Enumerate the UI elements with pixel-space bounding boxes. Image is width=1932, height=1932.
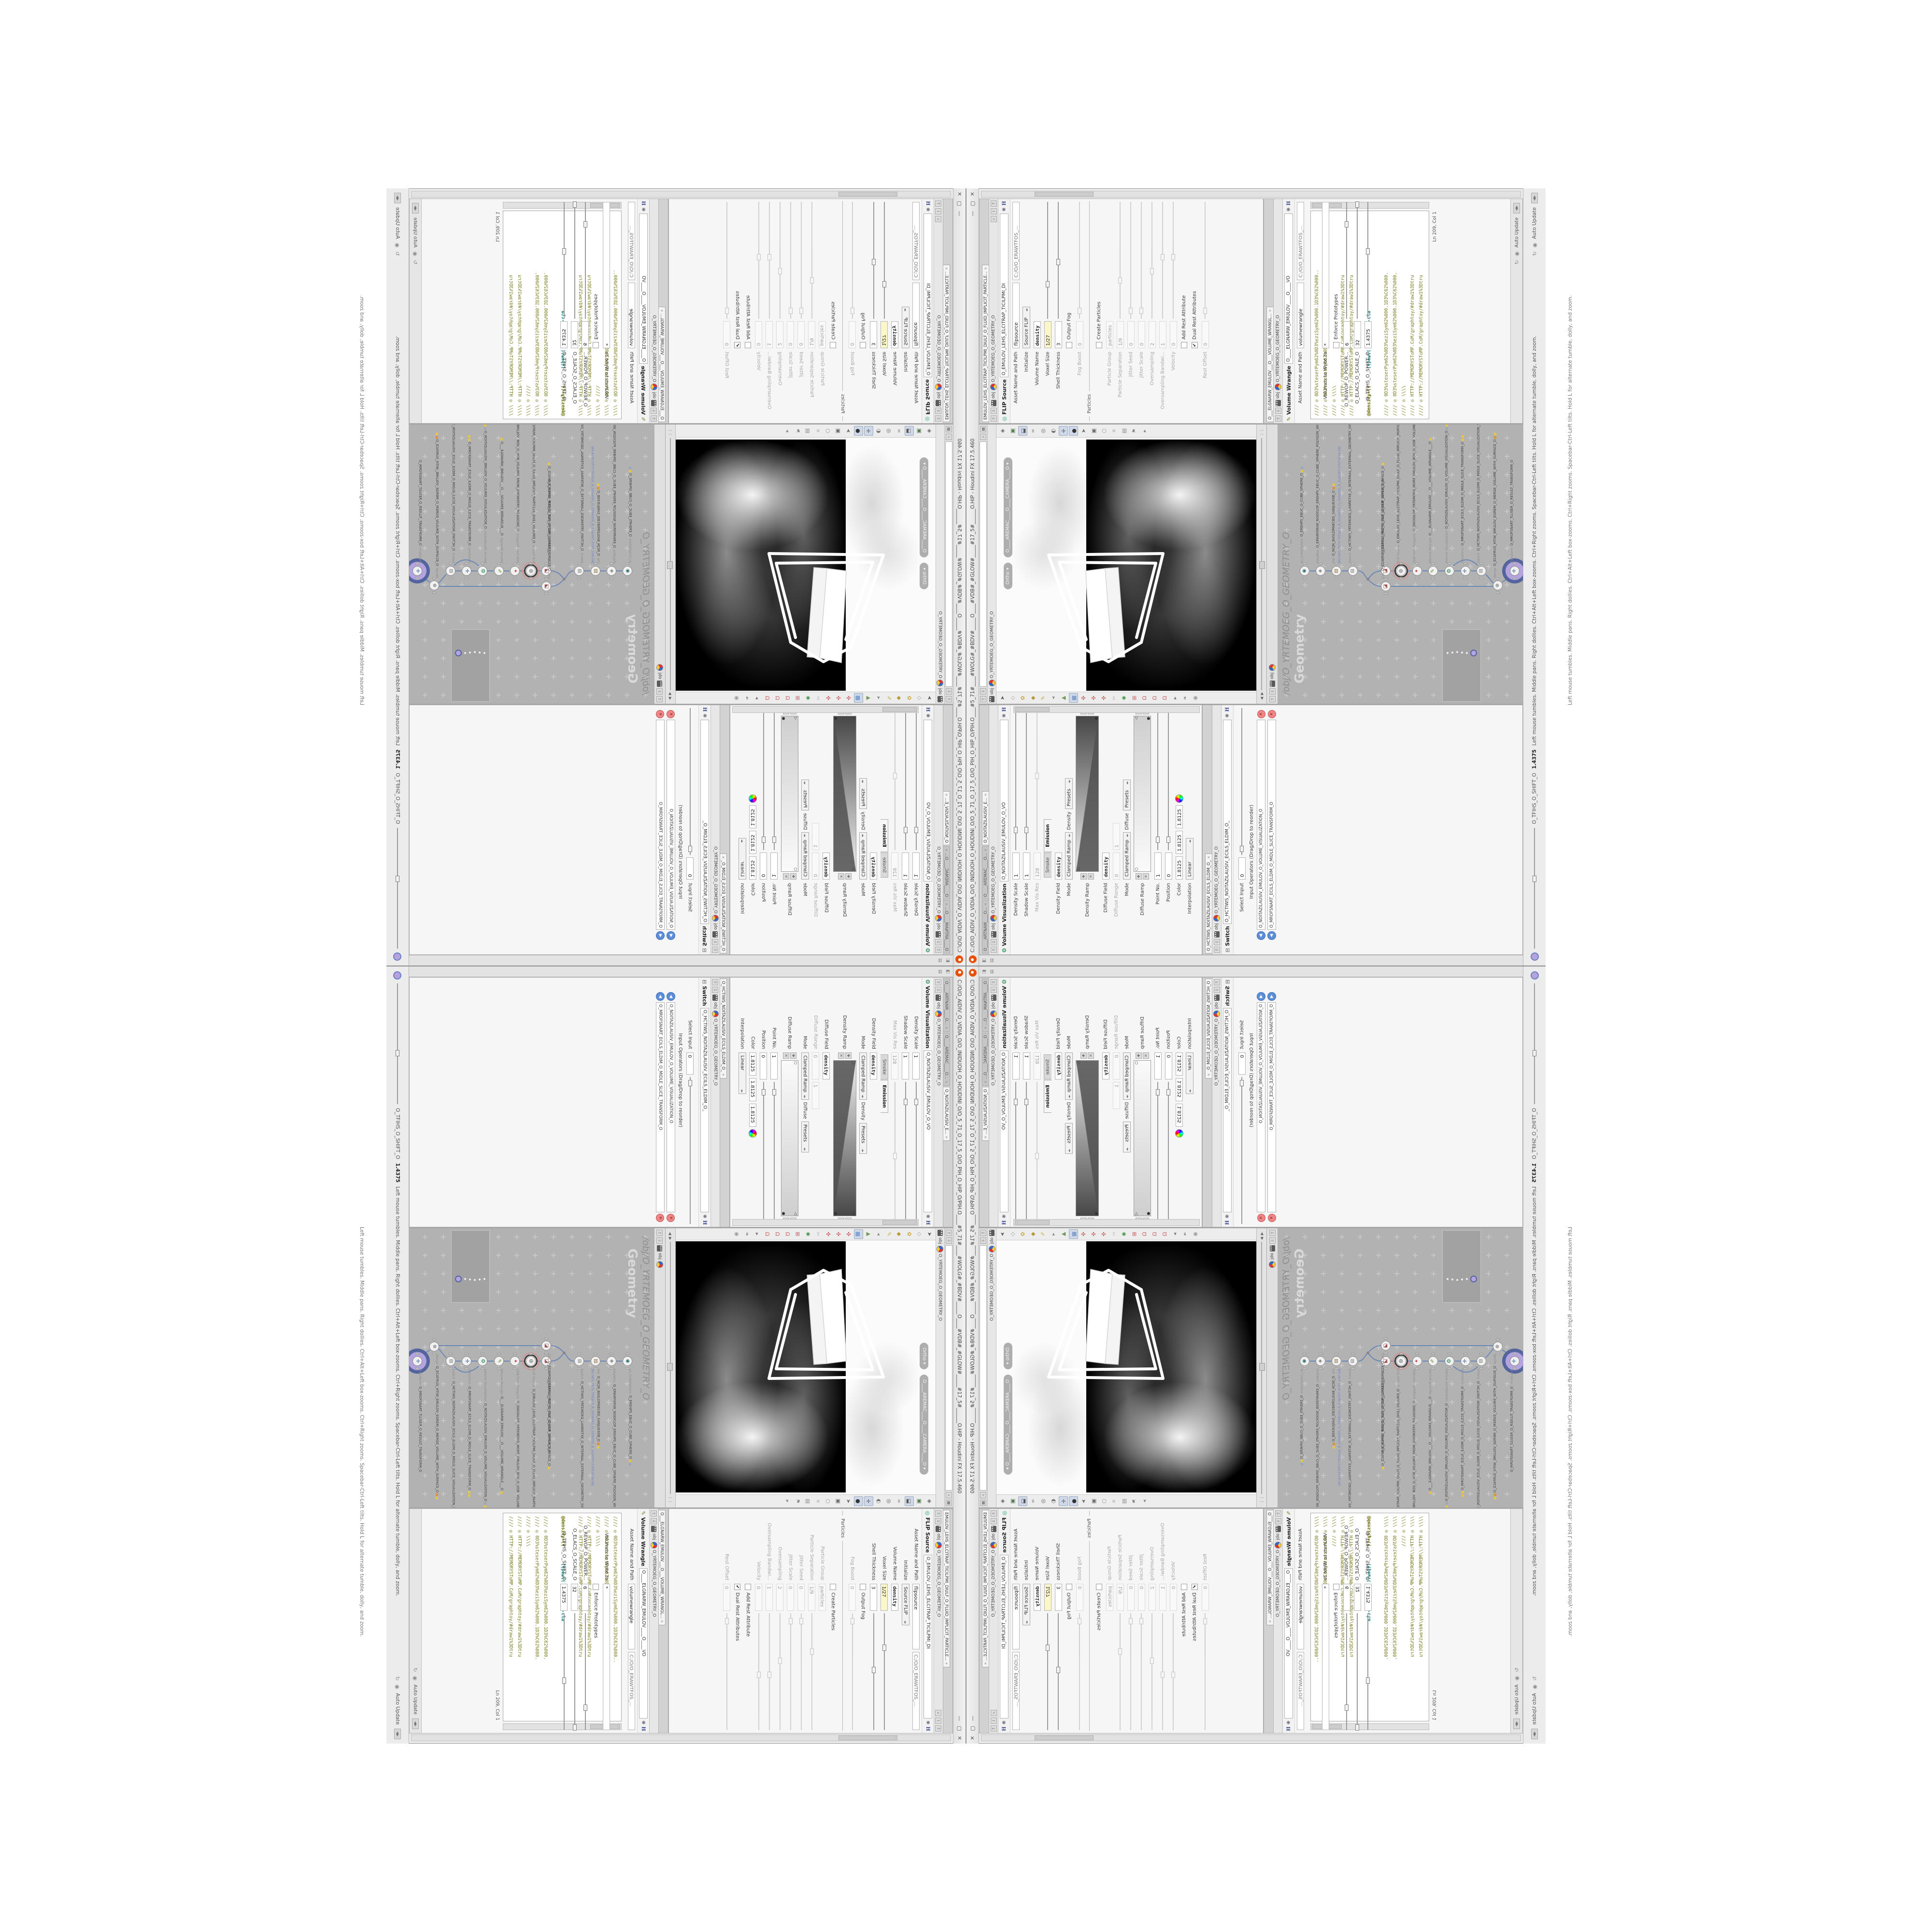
recook-icon[interactable]: ↻: [412, 1668, 419, 1672]
volumes-value[interactable]: *: [1322, 202, 1329, 348]
gear-icon[interactable]: ❋: [1002, 713, 1007, 717]
render-area[interactable]: Ortho ▾ O____AREMAC____O____CAMERA____O …: [676, 1240, 936, 1493]
param-slider[interactable]: [1202, 202, 1208, 319]
dropdown[interactable]: Linear: [1186, 1052, 1193, 1094]
left-pane-tab-2[interactable]: O_NOITAZILAUSIV_E...✕: [943, 791, 950, 845]
volviz-name-field[interactable]: O_NOITAZILAUSIV_EMULOV_O_VO: [923, 1051, 932, 1212]
left-pane-tab-2[interactable]: O_NOITAZILAUSIV_E...✕: [943, 1087, 950, 1141]
select-tool-icon[interactable]: ➤: [925, 693, 934, 703]
presets-dropdown[interactable]: Presets: [859, 778, 867, 809]
auto-update-select[interactable]: Auto Update: [395, 207, 400, 239]
network-node[interactable]: ✎: [493, 1355, 505, 1367]
camera-lock-icon[interactable]: ⬓: [1018, 1496, 1027, 1506]
select-input-value[interactable]: 0: [687, 1052, 694, 1075]
network-node[interactable]: ❂: [1443, 1355, 1456, 1367]
operator-delete-icon[interactable]: ✕: [656, 710, 665, 718]
param-slider[interactable]: [771, 1082, 778, 1224]
param-value[interactable]: 0: [798, 1584, 805, 1611]
param-value[interactable]: density: [1055, 852, 1062, 880]
network-node[interactable]: ▤: [589, 565, 602, 577]
param-value[interactable]: density: [823, 1052, 830, 1080]
wrangle-name-field[interactable]: O____ELGNARW_EMULOV____O____VO: [639, 213, 648, 364]
slider-knob[interactable]: [762, 837, 766, 843]
auto-update-select[interactable]: Auto Update: [1532, 207, 1537, 239]
operator-delete-icon[interactable]: ✕: [1257, 1214, 1265, 1222]
param-slider[interactable]: [1023, 1082, 1030, 1224]
more-icon[interactable]: ▸: [1140, 426, 1149, 436]
ramp-marker-start[interactable]: ○: [852, 1061, 856, 1065]
node-path[interactable]: O_YRTEMOEG_O_GEOMETRY_O: [938, 611, 943, 678]
param-value[interactable]: 1: [771, 852, 778, 880]
shade-half-icon[interactable]: ◐: [1049, 426, 1058, 436]
flip-pane-tab[interactable]: EMULOV_LEHS_ELCITRAP_TICILPMI_DIULF_O_FL…: [982, 1510, 989, 1667]
cut-tool-icon[interactable]: ✂: [1109, 1229, 1119, 1239]
subtab-emission[interactable]: Emission: [1044, 1080, 1051, 1113]
param-value[interactable]: 1/9: [1117, 321, 1124, 348]
asset-name-value[interactable]: volumewrangle: [1297, 1584, 1304, 1649]
asset-name-value[interactable]: flipsource: [1012, 283, 1020, 348]
dark-sphere-icon[interactable]: ●: [854, 1496, 863, 1506]
param-slider[interactable]: [1354, 1613, 1361, 1730]
viewport-search-input[interactable]: [980, 441, 987, 687]
ramp-marker-end[interactable]: ◁: [1134, 1212, 1138, 1215]
param-value[interactable]: 2: [777, 1584, 784, 1611]
range-min-value[interactable]: 0: [1113, 1052, 1120, 1080]
node-path[interactable]: O_YRTEMOEG_O_GEOMETRY_O: [1214, 1019, 1219, 1086]
slider-knob[interactable]: [799, 308, 803, 314]
slider-knob[interactable]: [810, 277, 814, 284]
rig-pose-icon[interactable]: ✣: [1079, 693, 1088, 703]
slider-knob[interactable]: [904, 1099, 908, 1105]
checkbox[interactable]: [1096, 1584, 1102, 1590]
node-circle[interactable]: ◪: [541, 1341, 551, 1350]
rig-rotate-icon[interactable]: ✣: [1089, 1229, 1098, 1239]
hscript-icon[interactable]: H: [925, 1727, 931, 1731]
param-value[interactable]: 128: [1034, 852, 1041, 880]
param-value[interactable]: 0: [1170, 321, 1177, 348]
tab-close-icon[interactable]: ✕: [984, 849, 988, 852]
context-label[interactable]: obj: [652, 392, 656, 398]
slider-knob[interactable]: [851, 1618, 854, 1624]
search-icon[interactable]: ⌕: [991, 1710, 997, 1716]
operator-reorder-icon[interactable]: ◀: [1257, 931, 1265, 940]
path-up-icon[interactable]: ⇧: [712, 947, 719, 953]
frame-fwd-icon[interactable]: ▶: [1260, 692, 1264, 695]
pane-split-icon[interactable]: ◧: [945, 958, 950, 963]
pane-menu-icon[interactable]: ▤: [938, 969, 942, 974]
hscript-icon[interactable]: H: [925, 1221, 931, 1225]
param-value[interactable]: 32: [1354, 1584, 1361, 1611]
search-icon[interactable]: ⌕: [980, 434, 986, 440]
viewport-playbar[interactable]: ◀ ▶ ⋮⋮: [665, 1228, 676, 1507]
network-node[interactable]: ✛: [460, 565, 473, 577]
cook-sphere-icon[interactable]: ◉: [395, 243, 401, 248]
switch-name-field[interactable]: O_HCTIWS_NOITAZILAUSIV_ECILS_ELDIM_O_: [1223, 1008, 1232, 1212]
path-down-icon[interactable]: ⇩: [980, 1237, 986, 1244]
context-label[interactable]: obj: [652, 1534, 656, 1540]
volviz-name-field[interactable]: O_NOITAZILAUSIV_EMULOV_O_VO: [1000, 720, 1009, 881]
select-input-value[interactable]: 0: [1238, 857, 1246, 880]
network-node[interactable]: ⊕: [1492, 579, 1504, 592]
frame-fwd-icon[interactable]: ▶: [668, 692, 673, 695]
node-circle[interactable]: ◉: [1300, 566, 1309, 576]
tab-close-icon[interactable]: ✕: [944, 903, 948, 906]
volviz-name-field[interactable]: O_NOITAZILAUSIV_EMULOV_O_VO: [1000, 1051, 1009, 1212]
context-label[interactable]: obj: [657, 672, 662, 679]
network-navmap[interactable]: [1442, 629, 1481, 702]
gear-icon[interactable]: ❋: [702, 1214, 708, 1218]
recook-icon[interactable]: ↻: [412, 260, 419, 264]
tab-close-icon[interactable]: ✕: [944, 794, 948, 796]
param-value[interactable]: 6: [1343, 1584, 1350, 1611]
presets-dropdown[interactable]: Presets: [801, 780, 809, 810]
param-slider[interactable]: [582, 1613, 589, 1730]
select-tool-icon[interactable]: ➤: [998, 1229, 1007, 1239]
grid-icon[interactable]: ▦: [980, 426, 986, 432]
param-slider[interactable]: [766, 1613, 773, 1730]
network-node[interactable]: ◎: [525, 565, 537, 577]
expand-icon[interactable]: ▸: [753, 693, 762, 703]
pane-menu-icon[interactable]: ▤: [990, 969, 994, 974]
slider-knob[interactable]: [778, 1658, 782, 1664]
param-slider[interactable]: [1159, 1613, 1166, 1730]
path-down-icon[interactable]: ⇩: [991, 408, 997, 414]
splitter-handle[interactable]: ◀▶: [1513, 203, 1520, 213]
node-path[interactable]: O_YRTEMOEG_O_GEOMETRY_O: [991, 1550, 996, 1617]
grid-icon[interactable]: ▦: [980, 1500, 986, 1506]
camera-pill[interactable]: O____AREMAC____O____CAMERA____O ▾: [920, 1375, 928, 1475]
ramp-btn[interactable]: ✕: [838, 873, 844, 880]
range-min-value[interactable]: 0: [812, 852, 820, 880]
network-node[interactable]: ✎: [493, 565, 505, 577]
subtab-smoke[interactable]: Smoke: [1044, 1054, 1051, 1080]
enforce-checkbox[interactable]: [1333, 342, 1339, 348]
path-down-icon[interactable]: ⇩: [946, 1237, 952, 1244]
ramp-marker-end[interactable]: ◁: [1076, 717, 1080, 720]
pane-split-icon[interactable]: ◧: [945, 969, 950, 974]
param-slider[interactable]: [902, 1082, 909, 1224]
feather-icon[interactable]: ❧: [742, 693, 752, 703]
param-value[interactable]: 1/27: [1044, 321, 1051, 348]
path-up-icon[interactable]: ⇧: [1275, 415, 1281, 422]
path-down-icon[interactable]: ⇩: [1214, 987, 1220, 993]
param-slider[interactable]: [1149, 202, 1155, 319]
wrangle-pane-tab[interactable]: O___ELGNARW_EMULOV___O___VOLUME_WRANGL..…: [659, 307, 666, 422]
param-slider[interactable]: [582, 202, 589, 319]
context-label[interactable]: obj: [657, 1253, 662, 1260]
param-slider[interactable]: [1055, 202, 1062, 319]
param-value[interactable]: 2: [1149, 1584, 1156, 1611]
close-button[interactable]: ✕: [969, 192, 976, 196]
color-wheel-icon[interactable]: [1175, 1129, 1183, 1137]
node-circle[interactable]: ⊟: [1348, 1356, 1358, 1366]
network-node[interactable]: ✛: [1508, 565, 1521, 577]
network-node[interactable]: ▤: [589, 1355, 602, 1367]
param-value[interactable]: 1: [1012, 1052, 1020, 1080]
pinwheel-tool-icon[interactable]: ✱: [803, 693, 812, 703]
context-label[interactable]: obj: [990, 688, 994, 695]
path-down-icon[interactable]: ⇩: [1269, 1237, 1276, 1244]
more-icon[interactable]: ▸: [783, 426, 792, 436]
back-icon[interactable]: ◂: [1049, 1229, 1058, 1239]
param-value[interactable]: 2: [1149, 321, 1156, 348]
slider-knob[interactable]: [583, 221, 587, 227]
param-value[interactable]: 0: [787, 321, 795, 348]
switch-pane-tab[interactable]: O_HCTIWS_NOITAZILAUSIV_ECILS_ELDIM_O_✕: [1205, 853, 1212, 953]
path-down-icon[interactable]: ⇩: [1275, 1518, 1281, 1524]
context-label[interactable]: obj: [936, 923, 941, 930]
slider-knob[interactable]: [1035, 1153, 1039, 1159]
param-value[interactable]: particles: [1106, 1584, 1113, 1611]
param-value[interactable]: 1/9: [1117, 1584, 1124, 1611]
path-up-icon[interactable]: ⇧: [651, 415, 657, 422]
ramp-gradient[interactable]: ○◁●: [833, 716, 856, 872]
mode-dropdown[interactable]: Clamped Ramp: [1065, 1052, 1073, 1100]
node-circle[interactable]: ✎: [1428, 566, 1438, 576]
param-value[interactable]: 1: [1154, 1052, 1162, 1080]
path-up-icon[interactable]: ⇧: [936, 947, 942, 953]
param-slider[interactable]: [1076, 202, 1083, 319]
path-down-icon[interactable]: ⇩: [1269, 688, 1276, 695]
context-label[interactable]: obj: [991, 1534, 996, 1540]
info-icon[interactable]: i: [991, 208, 997, 214]
gear-icon[interactable]: ❋: [641, 1720, 646, 1724]
ring-icon[interactable]: ◎: [1038, 1496, 1048, 1506]
color-component-value[interactable]: 1.8125: [1176, 1104, 1183, 1127]
ring-icon[interactable]: ◎: [1038, 426, 1048, 436]
pearl-icon[interactable]: ◉: [732, 693, 741, 703]
asset-path-value[interactable]: C:/O/O_ERAWTFOS_...: [1297, 1652, 1304, 1730]
range-max-value[interactable]: 1: [1113, 1082, 1120, 1109]
slider-knob[interactable]: [1345, 221, 1349, 227]
presets-dropdown[interactable]: Presets: [1065, 1123, 1073, 1154]
rig-translate-icon[interactable]: ✣: [824, 1229, 833, 1239]
node-path[interactable]: O_YRTEMOEG_O_GEOMETRY_O: [991, 315, 996, 382]
path-up-icon[interactable]: ⇧: [651, 1510, 657, 1517]
ramp-gradient[interactable]: ○◁●: [781, 716, 798, 872]
pane-split-icon[interactable]: ◧: [982, 958, 987, 963]
network-node[interactable]: ✦: [1411, 565, 1423, 577]
pearl-icon[interactable]: ◉: [1191, 693, 1200, 703]
param-slider[interactable]: [1165, 708, 1172, 850]
subtab-emission[interactable]: Emission: [881, 819, 888, 852]
ramp-gradient[interactable]: ○◁●: [833, 1060, 856, 1216]
ramp-gradient[interactable]: ○◁●: [1134, 716, 1151, 872]
subtab-emission[interactable]: Emission: [881, 1080, 888, 1113]
hscript-icon[interactable]: H: [1002, 201, 1007, 205]
frame-slider[interactable]: [670, 1242, 671, 1494]
operator-delete-icon[interactable]: ✕: [667, 1214, 675, 1222]
view-diamond-icon[interactable]: ◈: [998, 426, 1007, 436]
gear-icon[interactable]: ❋: [1002, 207, 1007, 211]
param-slider[interactable]: [724, 1613, 730, 1730]
node-circle[interactable]: ◪: [1381, 1341, 1391, 1350]
volviz-scrollbar[interactable]: [1013, 706, 1200, 713]
node-circle[interactable]: ✦: [510, 1356, 520, 1366]
select-input-slider[interactable]: [687, 708, 694, 855]
snapshot-icon[interactable]: ▣: [834, 426, 843, 436]
color-component-value[interactable]: 1.8125: [750, 1052, 757, 1076]
viewport-playbar[interactable]: ◀ ▶ ⋮⋮: [665, 425, 676, 704]
color-wheel-icon[interactable]: [749, 1129, 757, 1137]
tab-close-icon[interactable]: ✕: [944, 1136, 948, 1138]
snap-grid-icon[interactable]: ⊞: [1130, 1229, 1139, 1239]
network-node[interactable]: ⊕: [428, 1340, 440, 1353]
param-value[interactable]: density: [892, 1584, 899, 1611]
network-node[interactable]: ⊟: [1475, 1355, 1488, 1367]
search-icon[interactable]: ⌕: [980, 1492, 986, 1498]
slider-knob[interactable]: [1014, 827, 1018, 833]
node-circle[interactable]: ⊕: [429, 1342, 439, 1351]
checkbox[interactable]: ✔: [735, 342, 741, 348]
rig-translate-icon[interactable]: ✣: [1099, 693, 1108, 703]
search-icon[interactable]: ⌕: [936, 216, 942, 222]
network-node[interactable]: ⊟: [444, 565, 457, 577]
param-slider[interactable]: [1165, 1082, 1172, 1224]
tab-close-icon[interactable]: ✕: [944, 267, 948, 270]
snap-point-icon[interactable]: Ω: [1150, 693, 1159, 703]
mode-dropdown[interactable]: Clamped Ramp: [1123, 1052, 1131, 1100]
ramp-gradient[interactable]: ○◁●: [1076, 1060, 1099, 1216]
fill-tool-icon[interactable]: ◆: [895, 1229, 904, 1239]
snap-point-icon[interactable]: Ω: [773, 1229, 782, 1239]
param-value[interactable]: 0: [1165, 1052, 1172, 1080]
node-path[interactable]: O_YRTEMOEG_O_GEOMETRY_O: [991, 846, 996, 913]
network-node[interactable]: ✎: [1427, 1355, 1439, 1367]
param-value[interactable]: 6: [582, 321, 589, 348]
tab-close-icon[interactable]: ✕: [721, 856, 725, 859]
slider-knob[interactable]: [893, 1153, 897, 1159]
context-label[interactable]: obj: [936, 1002, 941, 1009]
node-circle[interactable]: ✦: [1412, 566, 1422, 576]
dot-icon[interactable]: ○: [824, 426, 833, 436]
node-circle[interactable]: ⊕: [1493, 1342, 1503, 1351]
crosshair-icon[interactable]: ✛: [1059, 1496, 1068, 1506]
snap-point-icon[interactable]: Ω: [1150, 1229, 1159, 1239]
cook-sphere-icon[interactable]: ◉: [1532, 1685, 1538, 1690]
search-icon[interactable]: ⌕: [991, 216, 997, 222]
context-label[interactable]: obj: [991, 923, 996, 930]
recook-icon[interactable]: ↻: [1532, 251, 1538, 256]
network-node[interactable]: ✛: [1459, 1355, 1472, 1367]
param-value[interactable]: 0: [787, 1584, 795, 1611]
param-slider[interactable]: [760, 708, 767, 850]
grid-small-icon[interactable]: ⌗: [1109, 1496, 1119, 1506]
param-value[interactable]: 1: [913, 1052, 920, 1080]
node-circle[interactable]: ✛: [462, 1356, 471, 1366]
param-slider[interactable]: [1138, 202, 1145, 319]
param-value[interactable]: 0: [1127, 1584, 1135, 1611]
network-node[interactable]: ▤: [1330, 1355, 1343, 1367]
expand-icon[interactable]: ▸: [753, 1229, 762, 1239]
grid-icon[interactable]: ▦: [946, 426, 952, 432]
param-slider[interactable]: [1149, 1613, 1155, 1730]
tab-close-icon[interactable]: ✕: [944, 1080, 948, 1083]
viewport-search-input[interactable]: [945, 1245, 952, 1491]
param-value[interactable]: 6: [582, 1584, 589, 1611]
ramp-btn[interactable]: ✚: [1080, 1052, 1087, 1059]
network-node[interactable]: ◉: [621, 565, 634, 577]
checkbox[interactable]: ✔: [735, 1584, 741, 1590]
operator-delete-icon[interactable]: ✕: [1257, 710, 1265, 718]
subtab-smoke[interactable]: Smoke: [881, 1054, 888, 1080]
pinwheel-tool-icon[interactable]: ✱: [803, 1229, 812, 1239]
wrangle-name-field[interactable]: O____ELGNARW_EMULOV____O____VO: [1284, 213, 1293, 364]
node-circle[interactable]: ▤: [591, 1356, 600, 1366]
param-slider[interactable]: [787, 1613, 794, 1730]
link-view-icon[interactable]: ∞: [895, 426, 904, 436]
slider-knob[interactable]: [1366, 248, 1370, 255]
cut-tool-icon[interactable]: ✂: [1109, 693, 1119, 703]
param-slider[interactable]: [1154, 1082, 1161, 1224]
param-value[interactable]: density: [1055, 1052, 1062, 1080]
path-down-icon[interactable]: ⇩: [991, 1518, 997, 1524]
param-value[interactable]: 1.4375: [1364, 1584, 1372, 1611]
node-circle[interactable]: ⊟: [446, 566, 455, 576]
network-navmap[interactable]: [451, 629, 490, 702]
node-circle[interactable]: ◪: [541, 582, 551, 591]
slider-knob[interactable]: [1203, 1618, 1207, 1624]
param-value[interactable]: 1: [766, 321, 773, 348]
slider-knob[interactable]: [893, 773, 897, 779]
help-icon[interactable]: ?: [936, 200, 942, 207]
viewport-playbar[interactable]: ◀ ▶ ⋮⋮: [1256, 425, 1267, 704]
snap-magnet-icon[interactable]: Ω: [783, 693, 792, 703]
network-editor[interactable]: /obj/O_YRTEMOEG_O_GEOMETRY_O Geometry ◉a…: [1278, 1228, 1523, 1507]
mode-dropdown[interactable]: Clamped Ramp: [1123, 832, 1131, 880]
path-up-icon[interactable]: ⇧: [946, 1230, 952, 1236]
fill-tool-icon[interactable]: ◆: [895, 693, 904, 703]
slider-knob[interactable]: [1129, 1618, 1133, 1624]
view-mode-pill[interactable]: Ortho ▾: [1004, 1343, 1012, 1369]
ramp-btn[interactable]: ✚: [845, 873, 852, 880]
path-down-icon[interactable]: ⇩: [712, 939, 719, 945]
slider-knob[interactable]: [1024, 827, 1028, 833]
param-slider[interactable]: [902, 708, 909, 850]
ramp-btn[interactable]: ✚: [1136, 873, 1142, 880]
node-circle[interactable]: ❂: [1445, 566, 1454, 576]
snap-prim-icon[interactable]: Ω: [1160, 693, 1169, 703]
tab-close-icon[interactable]: ✕: [984, 1136, 988, 1138]
snap-magnet-icon[interactable]: Ω: [783, 1229, 792, 1239]
node-path[interactable]: O_YRTEMOEG_O_GEOMETRY_O: [990, 1254, 994, 1321]
slider-knob[interactable]: [904, 827, 908, 833]
view-mode-icon[interactable]: ▦: [854, 693, 863, 703]
slider-knob[interactable]: [1355, 1724, 1359, 1731]
path-down-icon[interactable]: ⇩: [1275, 408, 1281, 414]
param-value[interactable]: particles: [819, 321, 826, 348]
dropdown[interactable]: Source FLIP: [902, 307, 909, 348]
pearl-icon[interactable]: ◉: [732, 1229, 741, 1239]
context-label[interactable]: obj: [1276, 1534, 1280, 1540]
node-circle[interactable]: ⊕: [1493, 581, 1503, 590]
node-path[interactable]: O_YRTEMOEG_O_GEOMETRY_O: [936, 846, 941, 913]
param-value[interactable]: 0: [724, 1584, 731, 1611]
node-circle[interactable]: ◎: [526, 1356, 536, 1366]
checkbox[interactable]: [745, 342, 752, 348]
param-value[interactable]: 0: [798, 321, 805, 348]
path-up-icon[interactable]: ⇧: [1214, 947, 1220, 953]
tab-close-icon[interactable]: ✕: [984, 1662, 988, 1665]
checkbox[interactable]: ✔: [1192, 1584, 1198, 1590]
slider-knob[interactable]: [1355, 201, 1359, 208]
slider-knob[interactable]: [1056, 1667, 1060, 1673]
ramp-marker-dot[interactable]: ●: [834, 717, 838, 720]
snap-prim-icon[interactable]: Ω: [763, 693, 772, 703]
select-input-value[interactable]: 0: [1238, 1052, 1246, 1075]
operator-name[interactable]: O_NOITAZILAUSIV_EMULOV_O_VOLUME_VISUALIZ…: [1257, 720, 1265, 930]
more-icon[interactable]: ▸: [783, 1496, 792, 1506]
